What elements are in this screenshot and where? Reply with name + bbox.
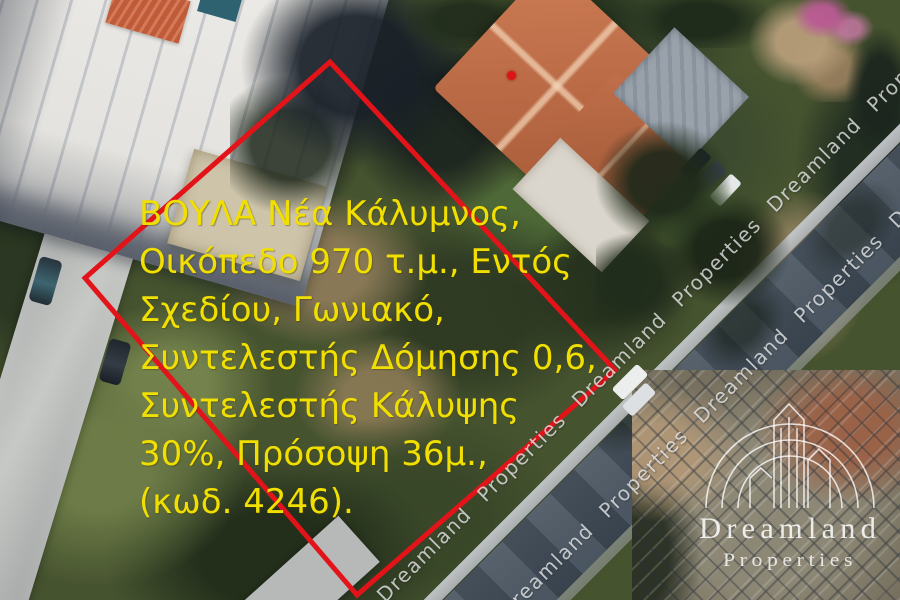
annotation-line: Οικόπεδο 970 τ.μ., Εντός: [139, 238, 597, 286]
logo-subtitle: Properties: [723, 550, 857, 571]
annotation-line: Συντελεστής Δόμησης 0,6,: [139, 334, 597, 382]
annotation-line: (κωδ. 4246).: [139, 478, 597, 526]
annotation-line: Συντελεστής Κάλυψης: [139, 382, 597, 430]
red-marker-dot: [507, 71, 516, 80]
logo-arcs-and-buildings-icon: [706, 404, 874, 508]
dreamland-properties-logo: Dreamland Properties: [688, 386, 892, 588]
listing-annotation: ΒΟΥΛΑ Νέα Κάλυμνος, Οικόπεδο 970 τ.μ., Ε…: [139, 190, 597, 526]
logo-wordmark: Dreamland: [699, 512, 881, 545]
annotation-line: Σχεδίου, Γωνιακό,: [139, 286, 597, 334]
annotation-line: ΒΟΥΛΑ Νέα Κάλυμνος,: [139, 190, 597, 238]
listing-image: ΒΟΥΛΑ Νέα Κάλυμνος, Οικόπεδο 970 τ.μ., Ε…: [0, 0, 900, 600]
